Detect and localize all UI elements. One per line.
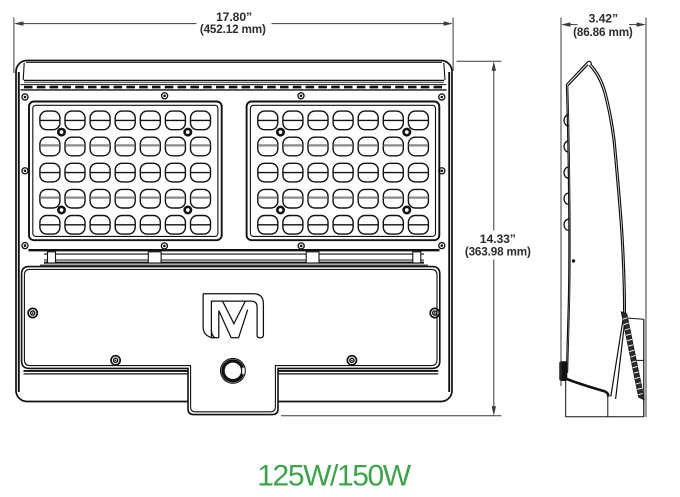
svg-text:14.33”: 14.33”	[480, 232, 516, 246]
svg-text:125W/150W: 125W/150W	[257, 460, 412, 493]
svg-text:(86.86 mm): (86.86 mm)	[573, 26, 633, 39]
svg-text:(363.98 mm): (363.98 mm)	[465, 245, 531, 258]
svg-text:(452.12 mm): (452.12 mm)	[200, 23, 266, 36]
svg-text:3.42”: 3.42”	[589, 12, 618, 26]
